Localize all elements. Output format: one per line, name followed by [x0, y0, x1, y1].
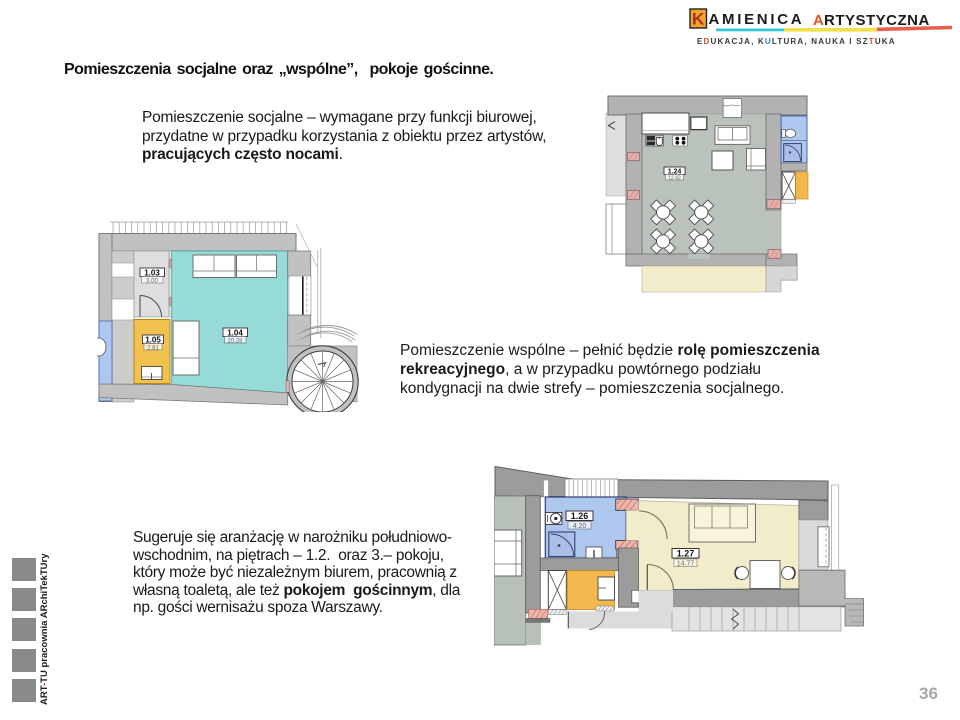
svg-text:AMIENICA: AMIENICA [709, 11, 805, 28]
svg-text:3.00: 3.00 [146, 278, 158, 284]
svg-text:1.27: 1.27 [677, 549, 695, 559]
svg-text:20.28: 20.28 [227, 338, 243, 344]
svg-text:1.05: 1.05 [145, 335, 161, 344]
svg-text:1.04: 1.04 [227, 328, 243, 337]
svg-text:4.20: 4.20 [573, 523, 587, 530]
svg-text:1.26: 1.26 [571, 511, 589, 521]
svg-text:12.42: 12.42 [668, 175, 681, 181]
svg-text:2.81: 2.81 [147, 345, 159, 351]
svg-text:A: A [813, 12, 824, 29]
svg-text:EDUKACJA, KULTURA, NAUKA I SZT: EDUKACJA, KULTURA, NAUKA I SZTUKA [697, 37, 896, 46]
svg-text:1.03: 1.03 [144, 268, 160, 277]
svg-text:14.77: 14.77 [677, 561, 695, 568]
svg-text:RTYSTYCZNA: RTYSTYCZNA [824, 12, 930, 29]
svg-text:K: K [692, 10, 705, 29]
